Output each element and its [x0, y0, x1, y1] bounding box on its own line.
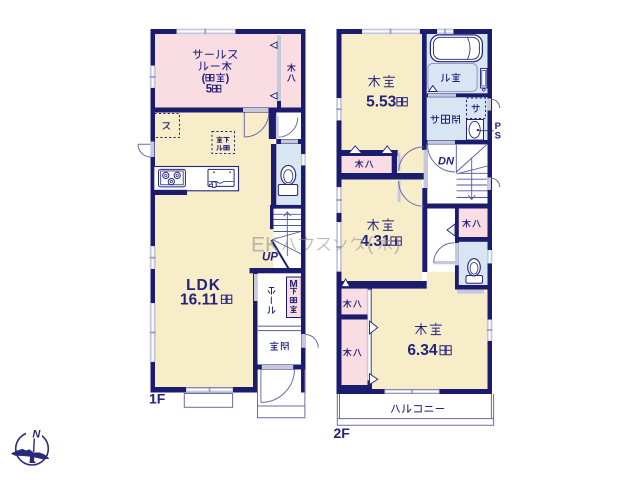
- svg-text:1F: 1F: [149, 391, 166, 407]
- svg-text:6.34: 6.34: [407, 342, 438, 359]
- svg-text:): ): [394, 234, 400, 255]
- svg-text:EK: EK: [251, 234, 279, 257]
- svg-text:16.11: 16.11: [180, 292, 218, 309]
- svg-text:DN: DN: [438, 156, 455, 168]
- svg-text:5: 5: [206, 84, 213, 96]
- svg-text:(: (: [367, 234, 374, 255]
- svg-text:5.53: 5.53: [366, 94, 397, 111]
- svg-text:S: S: [495, 131, 501, 142]
- svg-text:2F: 2F: [334, 425, 351, 441]
- svg-text:): ): [226, 73, 230, 85]
